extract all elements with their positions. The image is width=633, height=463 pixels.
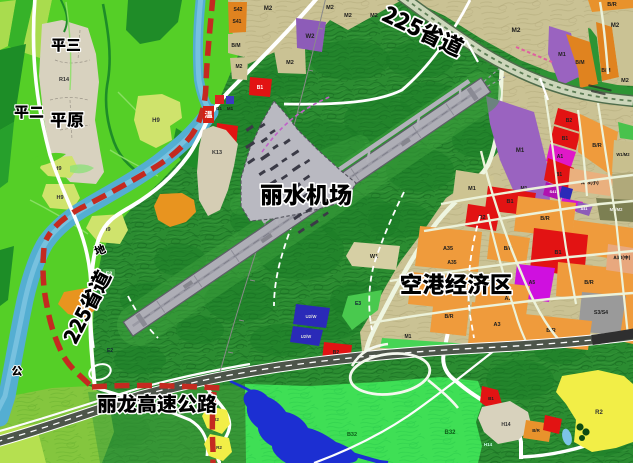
svg-text:B32: B32 bbox=[444, 430, 456, 436]
svg-text:R2: R2 bbox=[595, 410, 603, 416]
svg-text:S42: S42 bbox=[234, 7, 243, 13]
svg-text:A35: A35 bbox=[447, 260, 456, 266]
svg-text:M1: M1 bbox=[468, 186, 476, 192]
svg-text:M2: M2 bbox=[286, 60, 294, 66]
svg-text:R2: R2 bbox=[216, 445, 222, 450]
svg-text:A35: A35 bbox=[443, 246, 453, 252]
svg-text:B/R: B/R bbox=[532, 428, 540, 433]
svg-text:H14: H14 bbox=[501, 422, 510, 428]
svg-text:M1: M1 bbox=[558, 52, 566, 58]
svg-text:A1: A1 bbox=[557, 154, 564, 160]
svg-text:W1/M2: W1/M2 bbox=[616, 152, 630, 157]
svg-text:M2: M2 bbox=[236, 64, 243, 70]
svg-text:H14: H14 bbox=[484, 442, 493, 447]
svg-text:M2: M2 bbox=[511, 27, 520, 34]
svg-text:M2: M2 bbox=[326, 5, 334, 11]
svg-text:B/R: B/R bbox=[540, 216, 550, 222]
svg-text:K13: K13 bbox=[212, 150, 222, 156]
svg-text:M1: M1 bbox=[405, 334, 412, 340]
svg-text:B1: B1 bbox=[488, 396, 494, 401]
svg-text:H9: H9 bbox=[152, 118, 160, 124]
svg-text:U2/W: U2/W bbox=[301, 334, 312, 339]
svg-text:R14: R14 bbox=[59, 77, 70, 83]
svg-text:B/M: B/M bbox=[575, 60, 584, 66]
svg-text:B1: B1 bbox=[506, 199, 513, 205]
svg-text:E3: E3 bbox=[355, 301, 361, 307]
svg-text:M2: M2 bbox=[344, 13, 352, 19]
svg-text:B/R: B/R bbox=[592, 143, 602, 149]
svg-text:S41: S41 bbox=[549, 189, 557, 194]
svg-text:B/R: B/R bbox=[607, 2, 617, 8]
svg-text:G1: G1 bbox=[216, 106, 223, 111]
svg-text:B1: B1 bbox=[554, 250, 561, 256]
svg-text:B2: B2 bbox=[566, 118, 573, 124]
svg-text:B1: B1 bbox=[257, 85, 264, 91]
svg-text:E2: E2 bbox=[107, 348, 113, 354]
svg-text:B1: B1 bbox=[562, 136, 569, 142]
svg-text:H9: H9 bbox=[56, 195, 63, 201]
svg-text:M2: M2 bbox=[621, 78, 629, 84]
svg-text:B/M: B/M bbox=[231, 43, 240, 49]
svg-text:B/M: B/M bbox=[601, 68, 610, 74]
svg-text:M2: M2 bbox=[264, 6, 273, 12]
svg-text:W2: W2 bbox=[306, 34, 316, 40]
svg-text:A3: A3 bbox=[493, 322, 500, 328]
svg-text:M1: M1 bbox=[227, 106, 234, 111]
svg-text:S41: S41 bbox=[233, 19, 242, 25]
svg-text:M1/M2: M1/M2 bbox=[610, 207, 623, 212]
svg-text:A5: A5 bbox=[529, 280, 536, 286]
svg-text:B32: B32 bbox=[347, 432, 357, 438]
svg-text:B/R: B/R bbox=[584, 280, 594, 286]
svg-text:U2/W: U2/W bbox=[306, 314, 318, 319]
svg-text:M1: M1 bbox=[516, 148, 525, 154]
svg-text:M2: M2 bbox=[370, 13, 378, 19]
svg-text:S3/S4: S3/S4 bbox=[594, 310, 608, 316]
svg-text:B/R: B/R bbox=[445, 314, 454, 320]
